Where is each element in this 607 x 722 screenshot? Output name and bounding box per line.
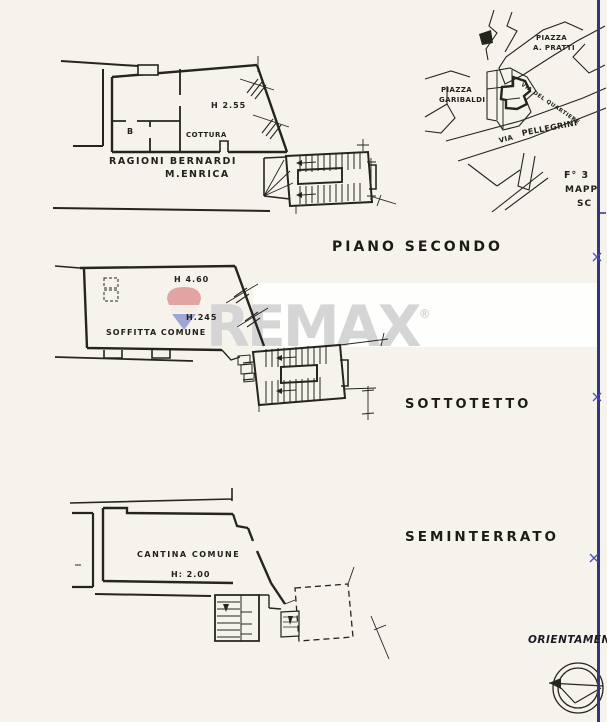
orientation-label: ORIENTAMEN [528, 634, 607, 646]
piazza-pratti-label-line2: A. PRATTI [533, 44, 575, 52]
sheet-ref-mappale: MAPP [565, 185, 598, 195]
room-b-label: B [127, 127, 134, 136]
owner-name-line1: RAGIONI BERNARDI [109, 156, 237, 167]
location-map-drawing [425, 10, 606, 212]
scan-edge-line [590, 0, 606, 722]
seminterrato-title: SEMINTERRATO [405, 529, 559, 545]
sheet-ref-folio: F° 3 [564, 170, 589, 181]
seminterrato-drawing [70, 488, 389, 659]
soffitta-comune-label: SOFFITTA COMUNE [106, 328, 206, 337]
sheet-ref-scala: SC [577, 199, 592, 209]
piazza-pratti-label-line1: PIAZZA [536, 34, 567, 42]
height-mid-label: H.245 [186, 313, 217, 322]
floor-plan-linework [0, 0, 607, 722]
height-label-piano-secondo: H 2.55 [211, 101, 246, 110]
height-ridge-label: H 4.60 [174, 275, 209, 284]
piazza-garibaldi-label-line2: GARIBALDI [439, 96, 485, 104]
cantina-height-label: H: 2.00 [171, 570, 210, 579]
sottotetto-title: SOTTOTETTO [405, 397, 531, 412]
owner-name-line2: M.ENRICA [165, 169, 230, 180]
cottura-label: COTTURA [186, 131, 227, 139]
piano-secondo-title: PIANO SECONDO [332, 239, 503, 255]
compass-icon [549, 663, 603, 713]
sottotetto-drawing [55, 266, 388, 420]
piazza-garibaldi-label-line1: PIAZZA [441, 86, 472, 94]
subject-parcel-outline [501, 77, 530, 109]
scanned-floor-plan-page: REMAX® [0, 0, 607, 722]
cantina-comune-label: CANTINA COMUNE [137, 550, 240, 559]
